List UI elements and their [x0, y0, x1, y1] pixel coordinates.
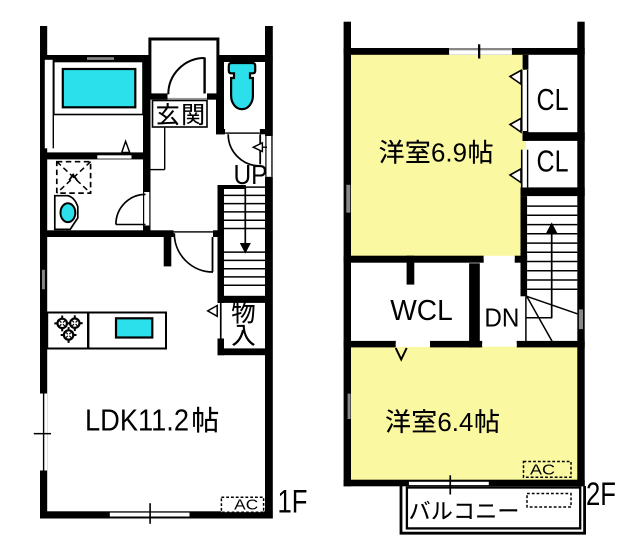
svg-text:CL: CL	[537, 144, 569, 178]
svg-text:AC: AC	[234, 497, 258, 513]
svg-text:2F: 2F	[586, 476, 616, 512]
svg-text:WCL: WCL	[390, 295, 453, 327]
svg-text:UP: UP	[234, 159, 268, 190]
svg-text:6.4: 6.4	[437, 407, 473, 437]
svg-text:CL: CL	[537, 83, 569, 117]
svg-text:DN: DN	[484, 305, 519, 333]
svg-text:AC: AC	[530, 461, 555, 478]
svg-text:LDK11.2: LDK11.2	[85, 403, 189, 437]
svg-text:6.9: 6.9	[431, 138, 467, 168]
svg-text:1F: 1F	[278, 484, 308, 520]
